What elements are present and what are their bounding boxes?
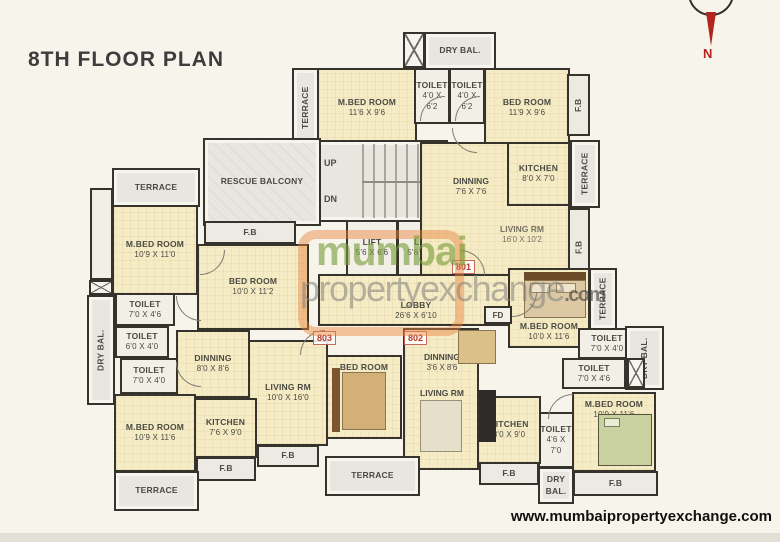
room-name-label: F.B (609, 478, 622, 489)
room-name-label: F.B (243, 227, 256, 238)
room-label: LIVING RM16'0 X 10'2 (484, 224, 560, 245)
room-dry-balcony-top: DRY BAL. (424, 32, 496, 70)
room-label: TERRACE (294, 70, 317, 146)
balcony-strip (90, 188, 113, 280)
duct-hatch (627, 358, 645, 388)
room-dims-label: 11'6 X 9'6 (349, 108, 386, 118)
room-master-bedroom-topleft: M.BED ROOM10'9 X 11'0 (112, 205, 198, 295)
room-name-label: TERRACE (597, 278, 608, 321)
room-toilet-801b: TOILET7'0 X 4'6 (562, 358, 626, 389)
room-label: LIFT5'6 X 6'6 (348, 222, 396, 274)
room-name-label: M.BED ROOM (126, 422, 184, 433)
room-kitchen-left: KITCHEN7'6 X 9'0 (194, 398, 257, 458)
room-terrace-bottomcentre: TERRACE (325, 456, 420, 496)
room-dims-label: 7'0 X 4'6 (578, 374, 610, 384)
bed-803 (342, 372, 386, 430)
room-name-label: LIVING RM (265, 382, 311, 393)
room-dims-label: 8'0 X 7'0 (522, 174, 554, 184)
room-name-label: M.BED ROOM (338, 97, 396, 108)
room-dims-label: 6'0 X 4'0 (126, 342, 158, 352)
pillow (604, 418, 620, 427)
room-kitchen-801: KITCHEN8'0 X 7'0 (507, 142, 570, 206)
compass-north-label: N (703, 46, 712, 61)
room-terrace-bottomleft: TERRACE (114, 471, 199, 511)
room-name-label: LOBBY (401, 300, 432, 311)
room-dims-label: 16'0 X 10'2 (484, 235, 560, 245)
room-label: DRY BAL. (426, 34, 494, 68)
room-name-label: F.B (219, 463, 232, 474)
room-name-label: TOILET (126, 331, 157, 342)
room-label: TOILET7'0 X 4'6 (117, 295, 173, 324)
room-dims-label: 8'0 X 8'6 (197, 364, 229, 374)
room-bedroom-topright: BED ROOM11'9 X 9'6 (484, 68, 570, 148)
room-name-label: KITCHEN (519, 163, 558, 174)
stairs-up-label: UP (324, 158, 337, 168)
room-label: M.BED ROOM11'6 X 9'6 (319, 70, 415, 146)
room-name-label: LIVING RM (500, 224, 544, 234)
room-terrace-right-mid: TERRACE (589, 268, 617, 330)
pillow (556, 283, 576, 293)
stairs-down-label: DN (324, 194, 337, 204)
room-toilet-802: TOILET4'6 X 7'0 (538, 412, 574, 468)
room-label: M.BED ROOM10'9 X 11'0 (114, 207, 196, 293)
duct-hatch (89, 280, 113, 295)
room-dry-balcony-802: DRY BAL. (538, 467, 574, 504)
room-dims-label: 10'0 X 11'6 (528, 332, 569, 342)
duct-hatch (403, 32, 425, 68)
room-label: TOILET7'0 X 4'6 (564, 360, 624, 387)
room-flowerbed-802: F.B (573, 471, 658, 496)
room-name-label: M.BED ROOM (126, 239, 184, 250)
room-label: TERRACE (572, 142, 598, 206)
door-arc (176, 296, 201, 321)
room-label: RESCUE BALCONY (205, 140, 319, 224)
room-terrace-topcentre: TERRACE (292, 68, 319, 148)
room-name-label: F.B (573, 98, 584, 111)
room-name-label: TOILET (416, 80, 447, 91)
room-name-label: TERRACE (579, 153, 590, 196)
room-name-label: TOILET (129, 299, 160, 310)
room-label: TERRACE (591, 270, 615, 328)
room-flowerbed-topright: F.B (567, 74, 590, 136)
room-dims-label: 7'6 X 7'6 (436, 187, 506, 197)
room-toilet-left-1: TOILET7'0 X 4'6 (115, 293, 175, 326)
room-name-label: TOILET (540, 424, 571, 435)
room-label: F.B (575, 473, 656, 494)
room-dims-label: 7'0 X 4'0 (133, 376, 165, 386)
room-dims-label: 8'0 X 9'0 (493, 430, 525, 440)
room-name-label: LIVING RM (420, 388, 464, 398)
room-flowerbed-802-kitchen: F.B (479, 462, 539, 485)
room-label: TOILET6'0 X 4'0 (117, 328, 167, 356)
room-label: TERRACE (116, 473, 197, 509)
room-name-label: TERRACE (135, 485, 178, 496)
unit-badge-802: 802 (404, 331, 427, 345)
room-label: BED ROOM11'9 X 9'6 (486, 70, 568, 146)
floor-plan-canvas: 8TH FLOOR PLAN www.mumbaipropertyexchang… (0, 0, 780, 542)
room-name-label: BED ROOM (229, 276, 277, 287)
room-terrace-topleft: TERRACE (112, 168, 200, 207)
room-name-label: BED ROOM (503, 97, 551, 108)
rescue-balcony: RESCUE BALCONY (203, 138, 321, 226)
room-dims-label: 10'0 X 11'2 (232, 287, 273, 297)
room-label: KITCHEN8'0 X 7'0 (509, 144, 568, 204)
room-label: LIVING RM10'0 X 16'0 (250, 342, 326, 444)
room-terrace-right-upper: TERRACE (570, 140, 600, 208)
room-label: F.B (259, 447, 317, 465)
room-label: DRY BAL. (540, 469, 572, 502)
room-dims-label: 10'9 X 11'6 (134, 433, 175, 443)
page-title: 8TH FLOOR PLAN (28, 48, 224, 72)
room-dims-label: 10'0 X 16'0 (267, 393, 309, 403)
room-master-bedroom-topcentre: M.BED ROOM11'6 X 9'6 (317, 68, 417, 148)
kitchen-counter (479, 390, 496, 442)
sofa (420, 400, 462, 452)
room-name-label: TERRACE (300, 87, 311, 130)
room-name-label: DRY BAL. (540, 474, 572, 496)
room-name-label: TOILET (578, 363, 609, 374)
room-dry-balcony-left: DRY BAL. (87, 295, 115, 405)
room-living-803: LIVING RM10'0 X 16'0 (248, 340, 328, 446)
room-label: TERRACE (114, 170, 198, 205)
room-label: TOILET7'0 X 4'0 (122, 360, 176, 392)
room-name-label: F.B (502, 468, 515, 479)
room-name-label: F.B (573, 240, 584, 253)
room-label: KITCHEN7'6 X 9'0 (196, 400, 255, 456)
room-dims-label: 3'6 X 8'6 (411, 363, 473, 373)
room-label: M.BED ROOM10'9 X 11'6 (116, 396, 194, 470)
compass-needle-icon (706, 12, 716, 46)
room-name-label: F.B (281, 450, 294, 461)
room-name-label: TOILET (133, 365, 164, 376)
room-dims-label: 4'6 X 7'0 (540, 435, 572, 456)
fd-label: FD (493, 311, 504, 320)
room-dims-label: 7'0 X 4'0 (591, 344, 623, 354)
room-name-label: RESCUE BALCONY (221, 176, 304, 187)
door-arc (548, 394, 573, 419)
room-label: F.B (198, 459, 254, 479)
lift-1: LIFT5'6 X 6'6 (346, 220, 398, 276)
room-label: F.B (206, 223, 294, 242)
room-dims-label: 5'6 X 6'6 (356, 248, 388, 258)
bed-headboard (524, 272, 586, 280)
room-name-label: DRY BAL. (439, 45, 480, 56)
room-flowerbed-803: F.B (257, 445, 319, 467)
room-name-label: DINNING (453, 176, 489, 186)
room-name-label: M.BED ROOM (520, 321, 578, 332)
room-label: F.B (569, 76, 588, 134)
room-label: DRY BAL. (89, 297, 113, 403)
dining-table (458, 330, 496, 364)
fire-door-box: FD (484, 306, 512, 324)
room-dims-label: 10'9 X 11'0 (134, 250, 175, 260)
room-name-label: TOILET (451, 80, 482, 91)
room-dims-label: 7'0 X 4'6 (129, 310, 161, 320)
room-label: TOILET4'6 X 7'0 (540, 414, 572, 466)
unit-badge-801: 801 (452, 260, 475, 274)
room-name-label: DINNING (424, 352, 460, 362)
room-master-bedroom-bottomleft: M.BED ROOM10'9 X 11'6 (114, 394, 196, 472)
room-name-label: TERRACE (351, 470, 394, 481)
website-url: www.mumbaipropertyexchange.com (511, 508, 772, 525)
room-name-label: TOILET (591, 333, 622, 344)
room-name-label: DRY BAL. (95, 329, 106, 370)
room-name-label: TERRACE (135, 182, 178, 193)
unit-badge-803: 803 (313, 331, 336, 345)
room-name-label: LIFT (363, 237, 382, 248)
wardrobe (332, 368, 340, 432)
room-dims-label: 7'6 X 9'0 (209, 428, 241, 438)
room-name-label: M.BED ROOM (585, 399, 643, 410)
room-toilet-left-3: TOILET7'0 X 4'0 (120, 358, 178, 394)
room-toilet-left-2: TOILET6'0 X 4'0 (115, 326, 169, 358)
room-dims-label: 11'9 X 9'6 (509, 108, 546, 118)
room-label: TERRACE (327, 458, 418, 494)
room-flowerbed-bottomleft: F.B (196, 457, 256, 481)
scan-edge (0, 533, 780, 542)
room-name-label: KITCHEN (206, 417, 245, 428)
room-flowerbed-topleft: F.B (204, 221, 296, 244)
room-label: DINNING7'6 X 7'6 (436, 176, 506, 197)
room-label: F.B (481, 464, 537, 483)
room-dims-label: 26'6 X 6'10 (395, 311, 437, 321)
